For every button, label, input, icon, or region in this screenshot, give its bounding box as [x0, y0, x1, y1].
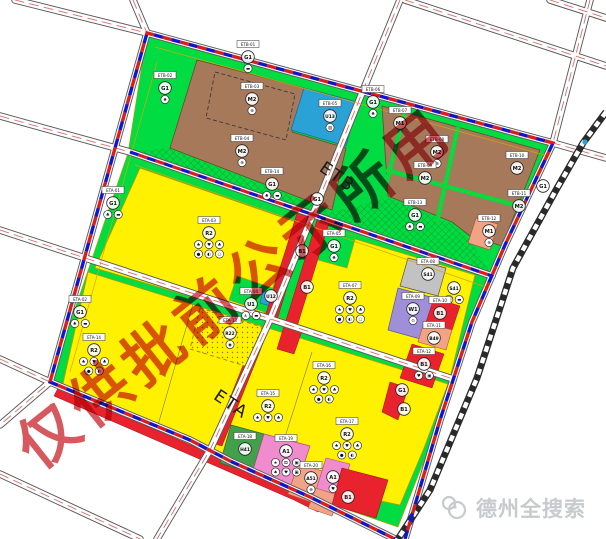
- svg-text:ETB-02: ETB-02: [158, 73, 173, 78]
- parcel-label-B1: B1: [296, 245, 309, 258]
- svg-text:ETB-13: ETB-13: [408, 200, 423, 205]
- svg-text:ETB-07: ETB-07: [393, 108, 408, 113]
- svg-text:W1: W1: [408, 307, 418, 313]
- svg-text:●: ●: [317, 398, 321, 403]
- svg-text:ETA-01: ETA-01: [106, 188, 120, 193]
- svg-text:♠: ♠: [256, 415, 260, 421]
- svg-text:◐: ◐: [348, 318, 352, 323]
- svg-text:R2: R2: [205, 231, 213, 237]
- svg-text:◐: ◐: [327, 398, 331, 403]
- svg-text:♠: ♠: [312, 387, 316, 393]
- svg-text:♣: ♣: [277, 415, 281, 421]
- site-logo-text: 德州全搜索: [476, 493, 586, 523]
- svg-text:♣: ♣: [265, 193, 269, 199]
- svg-text:M2: M2: [513, 166, 522, 172]
- svg-text:◐: ◐: [97, 370, 101, 375]
- svg-text:⊙: ⊙: [411, 319, 415, 324]
- svg-text:★: ★: [274, 460, 278, 466]
- svg-text:♥: ♥: [322, 387, 326, 393]
- svg-text:ETA-09: ETA-09: [406, 294, 420, 299]
- svg-text:M2: M2: [421, 176, 430, 182]
- svg-text:G1: G1: [313, 197, 321, 203]
- svg-text:▣: ▣: [294, 461, 298, 466]
- svg-text:♣: ♣: [163, 97, 167, 103]
- svg-text:⊛: ⊛: [240, 161, 244, 166]
- svg-text:ETB-01: ETB-01: [241, 42, 256, 47]
- svg-text:R2: R2: [90, 348, 98, 354]
- svg-text:M2: M2: [238, 149, 247, 155]
- svg-text:M2: M2: [248, 97, 257, 103]
- svg-text:♥: ♥: [92, 359, 96, 365]
- svg-text:ETA-10: ETA-10: [433, 298, 447, 303]
- svg-text:A1: A1: [329, 475, 337, 481]
- svg-text:ETA-15: ETA-15: [261, 391, 275, 396]
- svg-text:R22: R22: [225, 331, 235, 337]
- svg-text:▬: ▬: [457, 298, 461, 303]
- svg-text:ETA-11: ETA-11: [427, 323, 441, 328]
- parcel-label-B1: B1: [301, 281, 314, 294]
- svg-text:B1: B1: [400, 407, 408, 413]
- svg-text:▬: ▬: [246, 67, 250, 72]
- svg-text:G1: G1: [411, 213, 419, 219]
- parcel-label-B1: B1: [398, 403, 411, 416]
- svg-text:H41: H41: [240, 447, 250, 453]
- svg-text:ETA-14: ETA-14: [87, 335, 101, 340]
- svg-text:M2: M2: [433, 150, 442, 156]
- svg-text:ETB-04: ETB-04: [235, 136, 250, 141]
- svg-text:ETA-13: ETA-13: [223, 318, 237, 323]
- svg-text:B1: B1: [303, 285, 311, 291]
- parcel-label-U12: U12: [265, 290, 278, 303]
- svg-text:♣: ♣: [103, 359, 107, 365]
- svg-text:G1: G1: [268, 182, 276, 188]
- svg-text:ETB-12: ETB-12: [482, 216, 497, 221]
- svg-text:ETB-10: ETB-10: [510, 153, 525, 158]
- svg-text:U13: U13: [325, 114, 335, 120]
- svg-text:♠: ♠: [197, 242, 201, 248]
- svg-text:B1: B1: [420, 362, 428, 368]
- svg-text:G1: G1: [398, 388, 406, 394]
- planning-map: ETB-01G1▬ETB-02G1♣ETB-03M2⊛ETB-04M2⊛ETB-…: [0, 0, 606, 539]
- svg-text:ETA-03: ETA-03: [202, 218, 216, 223]
- svg-text:♠: ♠: [335, 443, 339, 449]
- svg-text:♣: ♣: [408, 224, 412, 230]
- svg-text:♥: ♥: [266, 415, 270, 421]
- parcel-label-G1: G1: [537, 180, 550, 193]
- svg-text:G1: G1: [330, 244, 338, 250]
- svg-text:G1: G1: [244, 55, 252, 61]
- svg-text:ETA-07: ETA-07: [343, 283, 357, 288]
- svg-text:♣: ♣: [356, 443, 360, 449]
- svg-text:G1: G1: [161, 86, 169, 92]
- svg-text:○: ○: [359, 318, 363, 323]
- svg-text:B49: B49: [429, 336, 438, 342]
- svg-text:M1: M1: [396, 121, 405, 127]
- svg-text:♣: ♣: [333, 387, 337, 393]
- svg-text:ETA-19: ETA-19: [279, 436, 293, 441]
- svg-text:⊛: ⊛: [250, 109, 254, 114]
- svg-text:B1: B1: [344, 495, 352, 501]
- svg-text:S41: S41: [423, 272, 432, 278]
- parcel-label-B1: B1: [342, 491, 355, 504]
- svg-text:♣: ♣: [73, 321, 77, 327]
- svg-text:B1: B1: [436, 311, 444, 317]
- svg-text:ETA-20: ETA-20: [304, 463, 318, 468]
- planning-map-page: ETB-01G1▬ETB-02G1♣ETB-03M2⊛ETB-04M2⊛ETB-…: [0, 0, 606, 539]
- svg-text:U1: U1: [247, 302, 255, 308]
- svg-text:ETB-08: ETB-08: [430, 137, 445, 142]
- svg-text:M1: M1: [485, 229, 494, 235]
- svg-text:▣: ▣: [427, 374, 431, 379]
- svg-text:◐: ◐: [350, 454, 354, 459]
- svg-text:B1: B1: [298, 249, 306, 255]
- svg-text:♥: ♥: [284, 470, 288, 476]
- svg-text:ETA-05: ETA-05: [327, 231, 341, 236]
- svg-text:⚄: ⚄: [284, 460, 288, 466]
- svg-text:♣: ♣: [371, 111, 375, 117]
- svg-text:●: ●: [197, 253, 201, 258]
- svg-text:G1: G1: [109, 201, 117, 207]
- svg-text:○: ○: [218, 253, 222, 258]
- svg-text:⊛: ⊛: [487, 241, 491, 246]
- svg-text:G1: G1: [76, 310, 84, 316]
- svg-text:♣: ♣: [359, 307, 363, 313]
- bird-logo-icon: [440, 495, 470, 521]
- svg-text:▬: ▬: [116, 213, 120, 218]
- rail-crossing-mark: [582, 139, 587, 144]
- svg-text:R2: R2: [346, 296, 354, 302]
- svg-text:●: ●: [87, 370, 91, 375]
- svg-text:▬: ▬: [418, 225, 422, 230]
- svg-text:♥: ♥: [207, 242, 211, 248]
- svg-text:R2: R2: [343, 432, 351, 438]
- svg-text:▬: ▬: [275, 194, 279, 199]
- svg-text:⊕: ⊕: [309, 488, 313, 493]
- svg-text:♣: ♣: [106, 212, 110, 218]
- svg-text:♥: ♥: [417, 373, 421, 379]
- svg-text:▨: ▨: [328, 126, 332, 131]
- svg-text:ETA-18: ETA-18: [238, 434, 252, 439]
- svg-text:ETA-17: ETA-17: [340, 419, 354, 424]
- parcel-label-G1: G1: [311, 193, 324, 206]
- svg-text:ETA-02: ETA-02: [73, 297, 87, 302]
- svg-text:ETA-16: ETA-16: [317, 363, 331, 368]
- svg-text:◉: ◉: [228, 343, 232, 348]
- svg-text:▬: ▬: [254, 314, 258, 319]
- svg-text:ETB-03: ETB-03: [245, 84, 260, 89]
- svg-text:▣: ▣: [294, 471, 298, 476]
- svg-text:ETA-04: ETA-04: [244, 289, 258, 294]
- svg-text:♥: ♥: [345, 443, 349, 449]
- parcel-label-G1: G1: [396, 384, 409, 397]
- svg-text:♠: ♠: [338, 307, 342, 313]
- svg-text:♥: ♥: [331, 486, 335, 492]
- svg-text:♠: ♠: [82, 359, 86, 365]
- svg-text:♥: ♥: [348, 307, 352, 313]
- svg-text:♣: ♣: [218, 242, 222, 248]
- svg-text:▬: ▬: [83, 322, 87, 327]
- svg-text:♣: ♣: [332, 255, 336, 261]
- svg-text:●: ●: [340, 454, 344, 459]
- svg-text:G1: G1: [539, 184, 547, 190]
- svg-text:U12: U12: [266, 294, 276, 300]
- svg-text:ETB-14: ETB-14: [265, 169, 280, 174]
- svg-text:R2: R2: [264, 404, 272, 410]
- site-logo: 德州全搜索: [440, 493, 586, 523]
- svg-text:●: ●: [338, 318, 342, 323]
- svg-text:S41: S41: [449, 286, 458, 292]
- svg-text:R2: R2: [320, 376, 328, 382]
- svg-text:M2: M2: [515, 204, 524, 210]
- svg-text:◐: ◐: [207, 253, 211, 258]
- svg-text:♠: ♠: [274, 470, 278, 476]
- svg-text:A1: A1: [282, 449, 290, 455]
- svg-text:ETA-12: ETA-12: [417, 349, 431, 354]
- svg-text:ETB-11: ETB-11: [512, 191, 527, 196]
- svg-text:G1: G1: [369, 100, 377, 106]
- svg-text:ETA-08: ETA-08: [421, 259, 435, 264]
- svg-text:ETB-06: ETB-06: [366, 87, 381, 92]
- svg-text:ETB-09: ETB-09: [418, 163, 433, 168]
- svg-text:ETB-05: ETB-05: [323, 101, 338, 106]
- svg-text:A51: A51: [306, 476, 316, 482]
- svg-text:♿: ♿: [244, 313, 248, 319]
